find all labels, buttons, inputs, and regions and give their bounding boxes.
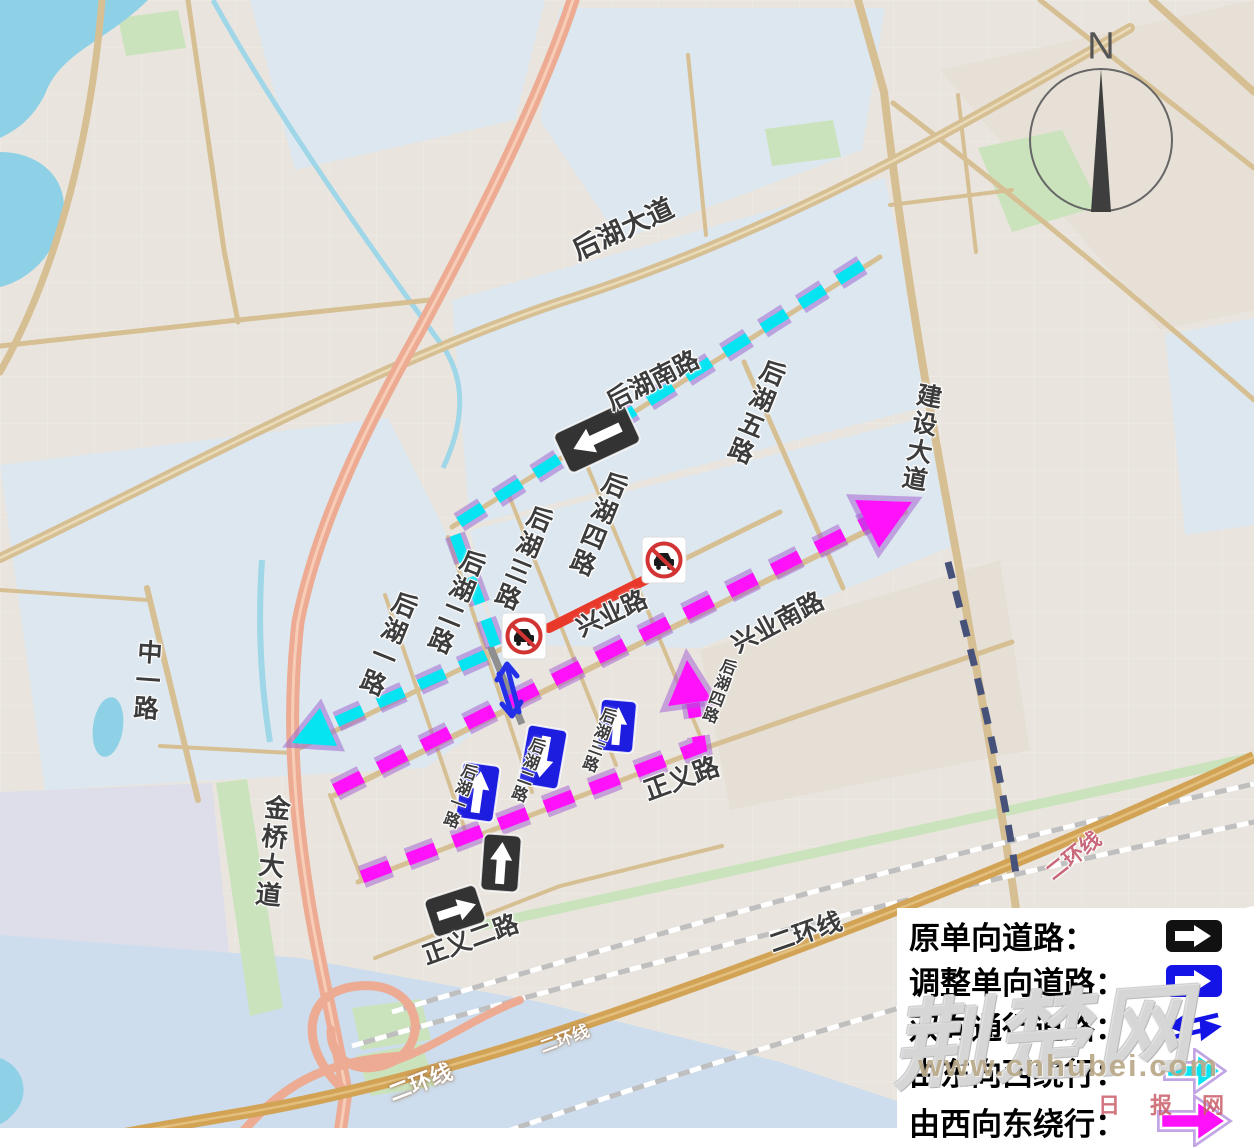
blue-one-way-sign-icon	[1142, 964, 1246, 998]
magenta-detour-arrow-icon	[1142, 1094, 1246, 1147]
one-way-sign-south-up	[480, 833, 522, 893]
legend-row-original-one-way: 原单向道路：	[909, 913, 1246, 958]
road-label-zhongyi: 中一路	[125, 638, 167, 724]
compass-north-label: N	[1087, 26, 1114, 69]
legend-row-adjusted-one-way: 调整单向道路：	[909, 958, 1246, 1003]
legend-label: 双向通行道路：	[909, 1003, 1126, 1048]
cyan-detour-arrow-icon	[1142, 1048, 1246, 1094]
legend-row-two-way: 双向通行道路：	[909, 1003, 1246, 1048]
two-way-arrows-icon	[1142, 1005, 1246, 1047]
legend-label: 由西向东绕行：	[909, 1099, 1126, 1144]
legend-row-west-east-detour: 由西向东绕行：	[909, 1094, 1246, 1147]
map-edge-strip	[0, 1128, 897, 1147]
no-entry-sign-west	[502, 613, 546, 659]
legend-label: 由东向西绕行：	[909, 1049, 1126, 1094]
legend-row-east-west-detour: 由东向西绕行：	[909, 1048, 1246, 1094]
no-entry-sign-east	[642, 537, 686, 583]
black-one-way-sign-icon	[1142, 919, 1246, 953]
legend: 原单向道路： 调整单向道路： 双向通行道路：	[897, 908, 1254, 1147]
legend-label: 调整单向道路：	[909, 958, 1126, 1003]
legend-label: 原单向道路：	[909, 913, 1095, 958]
traffic-map: 后湖大道 后湖南路 后湖五路 后湖四路 后湖三路 后湖二路 后湖一路 建设大道 …	[0, 0, 1254, 1147]
